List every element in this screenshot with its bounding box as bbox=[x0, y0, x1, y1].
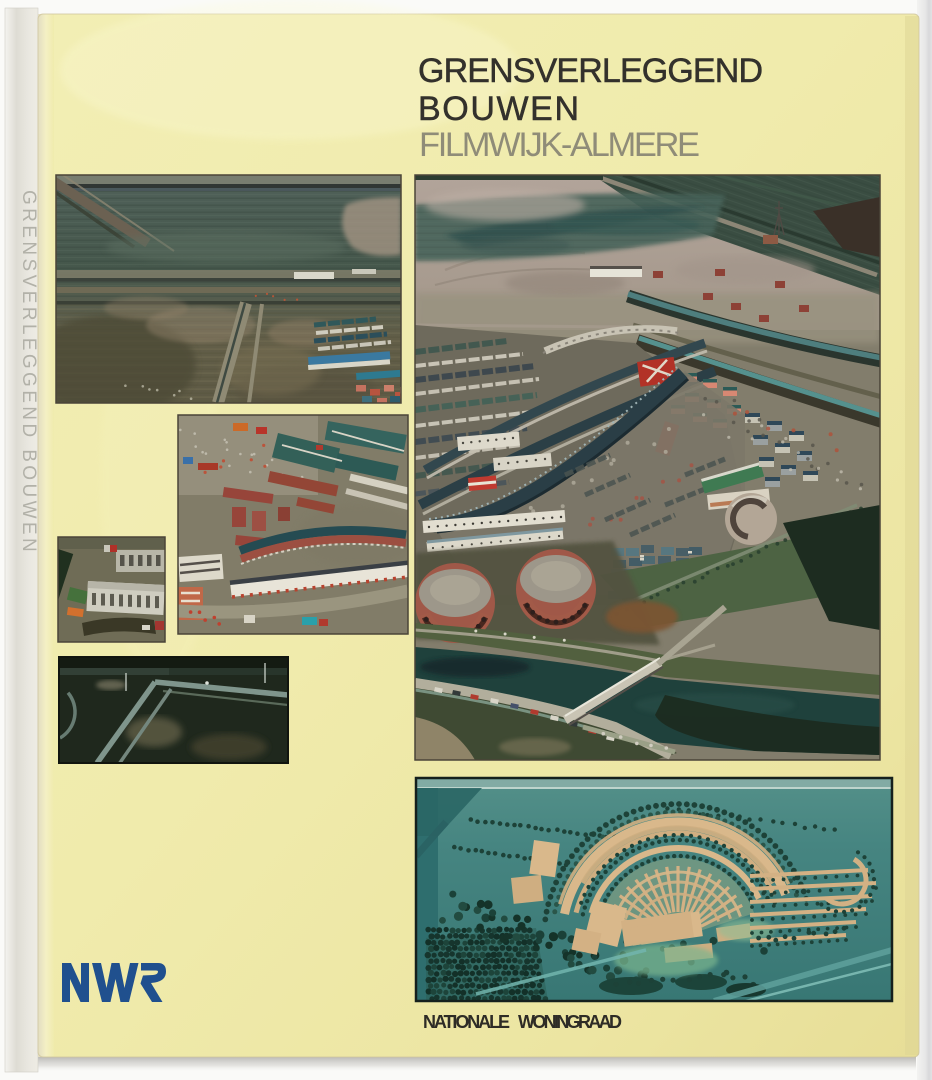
svg-text:FILMWIJK-ALMERE: FILMWIJK-ALMERE bbox=[419, 126, 700, 164]
svg-text:WONINGRAAD: WONINGRAAD bbox=[518, 1012, 622, 1032]
svg-text:GRENSVERLEGGEND BOUWEN: GRENSVERLEGGEND BOUWEN bbox=[18, 190, 39, 555]
svg-text:GRENSVERLEGGEND: GRENSVERLEGGEND bbox=[418, 52, 763, 90]
svg-text:NATIONALE: NATIONALE bbox=[423, 1012, 510, 1032]
svg-text:BOUWEN: BOUWEN bbox=[418, 90, 579, 128]
